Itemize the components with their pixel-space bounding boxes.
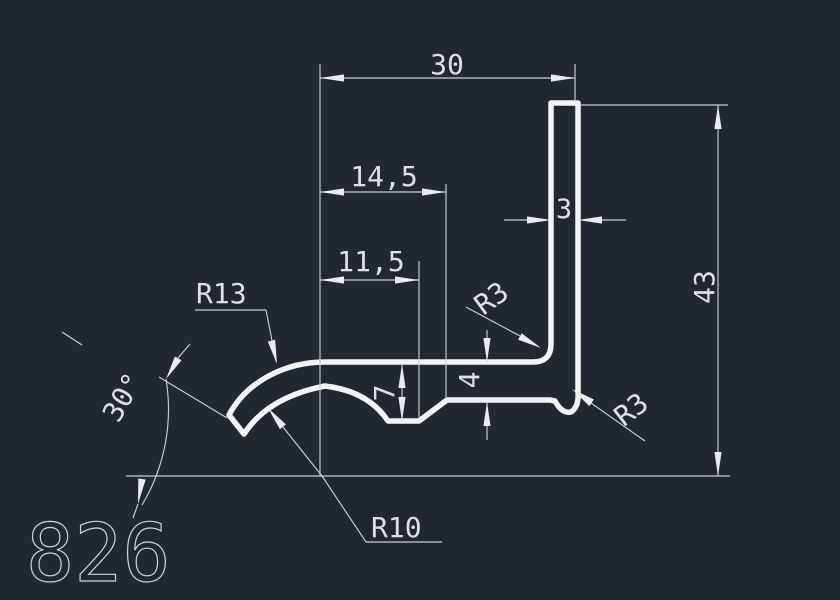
cad-drawing: 30 14,5 11,5 3 43 7 (0, 0, 840, 600)
arrowhead-upper-tail (178, 344, 190, 358)
dim-notch-depth: 7 (368, 364, 406, 421)
angle-ray (159, 377, 227, 418)
dim-label-top-width: 30 (430, 48, 464, 81)
arrowhead-up (483, 402, 490, 426)
dim-label-total-height: 43 (688, 270, 721, 304)
leader-line-segment-2 (283, 427, 322, 476)
cad-drawing-canvas: 30 14,5 11,5 3 43 7 (0, 0, 840, 600)
dim-label-end-angle: 30° (96, 367, 150, 427)
dim-label-arm-thickness: 4 (453, 372, 486, 389)
leader-arrowhead (518, 333, 541, 348)
leader-arrowhead (268, 408, 286, 429)
radius-callout-r13: R13 (195, 277, 277, 364)
arrowhead-right (578, 216, 602, 223)
angle-ray-far-segment (62, 332, 82, 345)
dim-label-mid-width: 14,5 (350, 160, 417, 193)
arrowhead-top (714, 105, 721, 129)
arrowhead-left (320, 188, 344, 195)
leader-line-segment-1 (322, 476, 366, 542)
dim-label-wall-thickness: 3 (556, 194, 572, 225)
radius-callout-r3-inner: R3 (466, 275, 541, 348)
arrowhead-bottom (714, 452, 721, 476)
arrowhead-left (320, 74, 344, 81)
arrowhead-down (483, 338, 490, 362)
arrowhead-upper (166, 357, 182, 380)
radius-label-r10: R10 (371, 511, 422, 544)
dim-label-notch-depth: 7 (368, 385, 401, 402)
dim-end-angle: 30° (62, 332, 227, 518)
radius-label-r3-outer: R3 (608, 386, 655, 433)
arrowhead-right (551, 74, 575, 81)
dim-label-inner-width: 11,5 (337, 245, 404, 278)
radius-callout-r3-outer: R3 (572, 386, 655, 441)
part-number: 826 (26, 507, 171, 600)
radius-label-r3-inner: R3 (468, 275, 515, 322)
arrowhead-left (527, 216, 551, 223)
angle-arc (142, 379, 168, 505)
leader-arrowhead (268, 340, 277, 364)
dim-wall-thickness: 3 (504, 194, 626, 225)
dim-arm-thickness: 4 (453, 330, 491, 440)
radius-label-r13: R13 (196, 277, 247, 310)
arrowhead-top (398, 364, 405, 388)
arrowhead-right (422, 188, 446, 195)
